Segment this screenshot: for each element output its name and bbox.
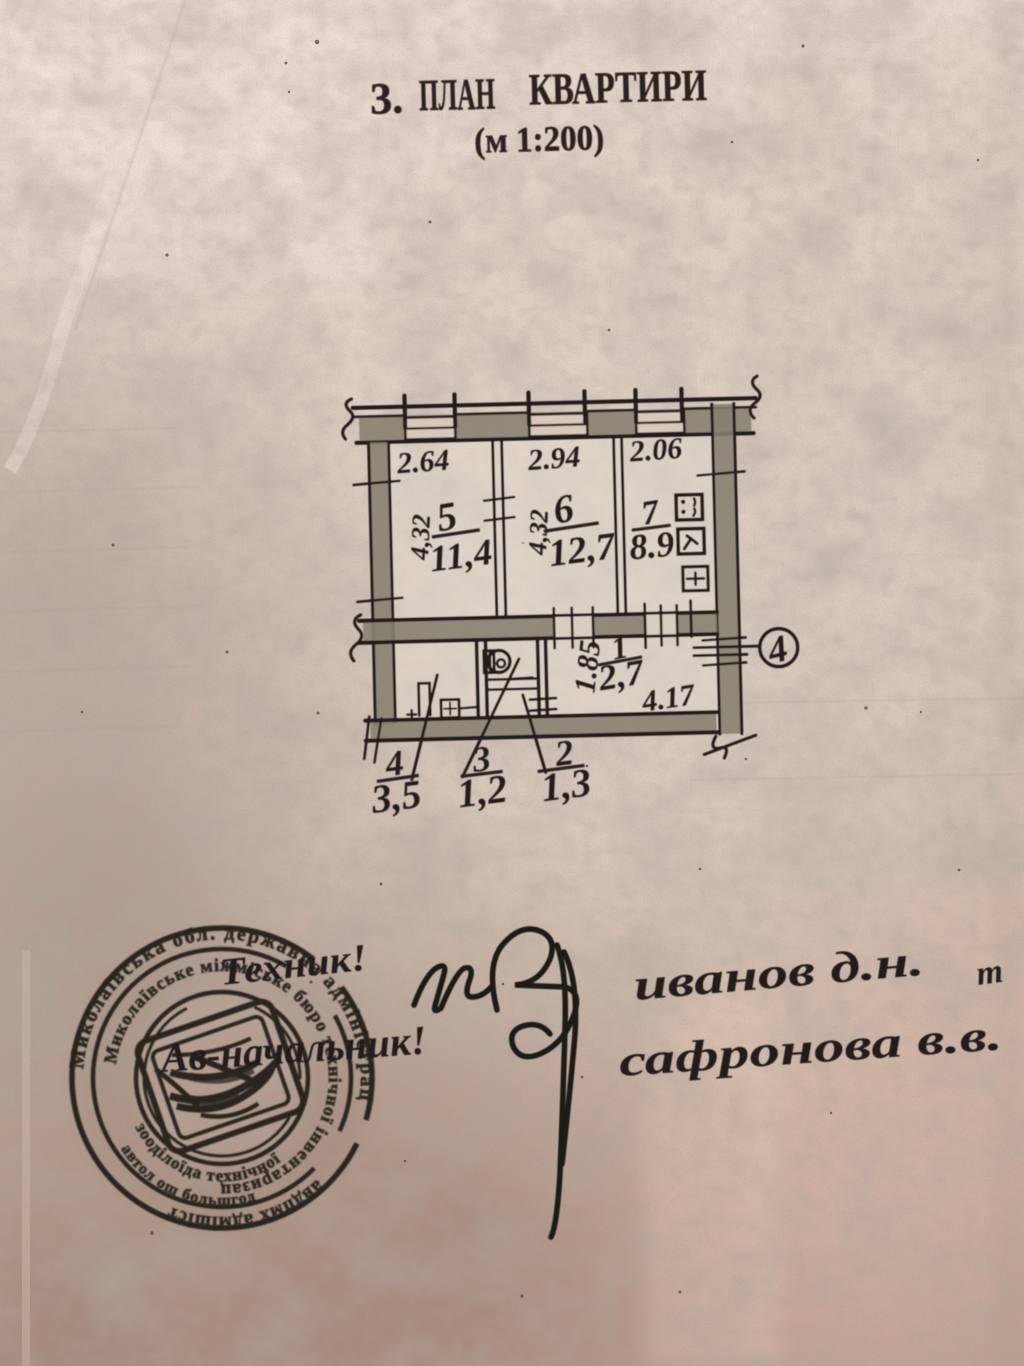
svg-text:КВАРТИРИ: КВАРТИРИ xyxy=(528,61,707,115)
svg-text:11,4: 11,4 xyxy=(427,532,494,581)
svg-text:1,2: 1,2 xyxy=(454,765,509,816)
svg-text:2.06: 2.06 xyxy=(628,432,684,469)
svg-text:8.9: 8.9 xyxy=(627,523,676,567)
svg-text:ПЛАН: ПЛАН xyxy=(418,69,495,120)
svg-text:2.94: 2.94 xyxy=(526,440,582,477)
svg-text:12,7: 12,7 xyxy=(546,525,619,575)
svg-text:т: т xyxy=(974,953,1005,993)
svg-text:1,3: 1,3 xyxy=(538,759,593,810)
svg-text:3,5: 3,5 xyxy=(368,771,424,822)
svg-text:(м 1:200): (м 1:200) xyxy=(474,117,605,160)
svg-text:3.: 3. xyxy=(369,74,403,124)
svg-text:2.64: 2.64 xyxy=(395,443,451,480)
